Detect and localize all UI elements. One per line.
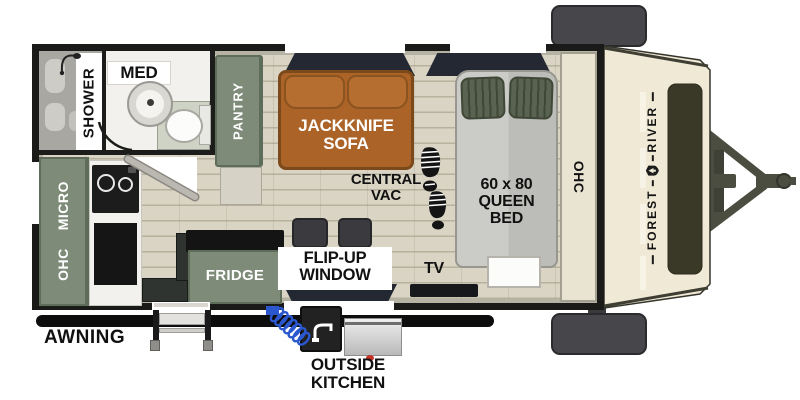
tongue-cross-member <box>712 174 736 188</box>
toilet-bowl <box>165 109 203 143</box>
shower-label: SHOWER <box>81 68 98 139</box>
range-controls <box>128 167 136 173</box>
a-frame-bar-lower <box>706 186 764 230</box>
queen-bed: 60 x 80 QUEEN BED <box>455 70 558 268</box>
forest-river-crest-icon <box>646 166 659 177</box>
outside-kitchen-sink <box>300 306 342 352</box>
bed-foot-bench <box>487 256 541 288</box>
fridge-label: FRIDGE <box>190 268 280 284</box>
tongue-jack-plate <box>706 140 722 222</box>
sofa-cushion-left <box>284 75 345 109</box>
griddle-edge <box>345 322 401 325</box>
pantry-shelf <box>220 167 262 205</box>
brand-word-forest: FOREST <box>645 190 659 251</box>
bed-label: 60 x 80 QUEEN BED <box>457 177 556 228</box>
step-foot-left <box>150 340 160 351</box>
a-frame-bar-upper <box>706 132 764 178</box>
brand-word-river: RIVER <box>645 106 659 153</box>
fridge: FRIDGE <box>188 250 282 304</box>
central-vac-label: CENTRAL VAC <box>346 172 426 204</box>
bed-pillow-right <box>508 76 553 120</box>
awning-bar <box>36 315 494 327</box>
bathroom-wall-divider <box>102 51 106 150</box>
entry-door-leaf <box>154 303 208 307</box>
med-cabinet-label: MED <box>108 64 170 82</box>
wall-gap-bed-window <box>450 44 546 53</box>
brand-dash <box>652 156 654 162</box>
outside-kitchen-label: OUTSIDE KITCHEN <box>296 356 400 392</box>
wall-gap-sofa-window <box>285 44 405 53</box>
rv-floorplan: MED SHOWER PANTRY JACKKNIFE SOFA CENTRAL… <box>0 0 800 400</box>
cap-top-trim <box>604 48 708 66</box>
brand-dash <box>652 181 654 187</box>
sofa-label: JACKKNIFE SOFA <box>281 117 411 153</box>
burner-right <box>118 177 133 192</box>
entry-step-upper <box>159 313 205 325</box>
med-cabinet: MED <box>107 61 171 85</box>
brand-dash <box>652 92 654 101</box>
flip-up-window-callout: FLIP-UP WINDOW <box>278 247 392 290</box>
shower-seat-lower <box>45 103 65 131</box>
front-ohc-label: OHC <box>571 161 587 194</box>
shower-seat <box>45 59 65 93</box>
bed-pillow-left <box>460 76 505 120</box>
wall-gap-left-window <box>32 162 39 224</box>
awning-label: AWNING <box>44 328 154 348</box>
tv-unit <box>410 284 478 297</box>
bar-stool-left <box>292 218 328 248</box>
brand-dash <box>652 255 654 264</box>
kitchen-counter <box>142 278 188 302</box>
oven <box>94 223 137 285</box>
front-corner-box-top <box>552 6 646 46</box>
forest-river-brand: FORESTRIVER <box>645 87 659 269</box>
outside-kitchen-griddle <box>344 318 402 356</box>
tongue-jack-post <box>714 150 724 212</box>
step-rail-right <box>205 310 211 342</box>
cap-bottom-trim <box>604 288 708 306</box>
front-cap-window-decal <box>668 84 702 274</box>
tongue-jack-wheel <box>714 176 724 186</box>
burner-left <box>97 174 115 192</box>
flip-up-window-label: FLIP-UP WINDOW <box>278 250 392 285</box>
hitch-coupler <box>777 174 791 188</box>
jackknife-sofa: JACKKNIFE SOFA <box>278 70 414 170</box>
fridge-top <box>186 230 284 252</box>
pantry-label: PANTRY <box>231 82 246 140</box>
kitchen-cabinet-label: OHCMICRO <box>55 181 71 281</box>
tv-label: TV <box>416 261 452 278</box>
range-unit <box>89 160 142 306</box>
cooktop <box>92 165 139 213</box>
tongue-beam <box>756 174 780 188</box>
bathroom: MED <box>39 51 215 155</box>
sofa-cushion-right <box>347 75 408 109</box>
hitch-coupler-tip <box>790 177 796 185</box>
front-corner-box-bottom <box>552 314 646 354</box>
entry-step-lower <box>159 328 205 333</box>
bar-stool-right <box>338 218 372 248</box>
entry-door-opening <box>152 302 210 311</box>
step-foot-right <box>203 340 213 351</box>
sink-drain <box>147 99 154 106</box>
